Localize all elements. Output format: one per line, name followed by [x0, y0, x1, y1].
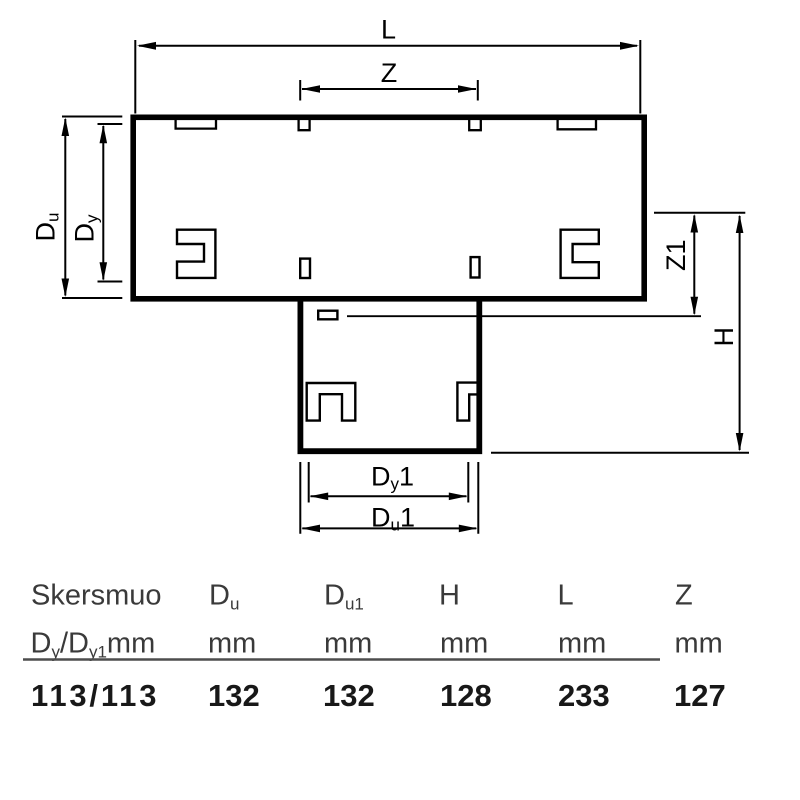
svg-text:128: 128: [440, 678, 492, 713]
svg-text:Z: Z: [675, 580, 693, 612]
svg-text:mm: mm: [440, 628, 488, 660]
svg-text:mm: mm: [558, 628, 606, 660]
svg-text:132: 132: [323, 678, 375, 713]
svg-text:Z: Z: [381, 58, 398, 88]
svg-text:Z1: Z1: [661, 239, 691, 271]
svg-text:233: 233: [558, 678, 610, 713]
svg-text:132: 132: [208, 678, 260, 713]
svg-text:H: H: [439, 580, 460, 612]
svg-text:127: 127: [674, 678, 726, 713]
svg-text:L: L: [381, 15, 396, 45]
svg-text:mm: mm: [675, 628, 723, 660]
svg-text:L: L: [558, 580, 574, 612]
svg-text:113/113: 113/113: [31, 678, 159, 713]
svg-text:mm: mm: [208, 628, 256, 660]
svg-text:Skersmuo: Skersmuo: [31, 580, 162, 612]
svg-text:H: H: [709, 327, 739, 347]
svg-text:mm: mm: [324, 628, 372, 660]
